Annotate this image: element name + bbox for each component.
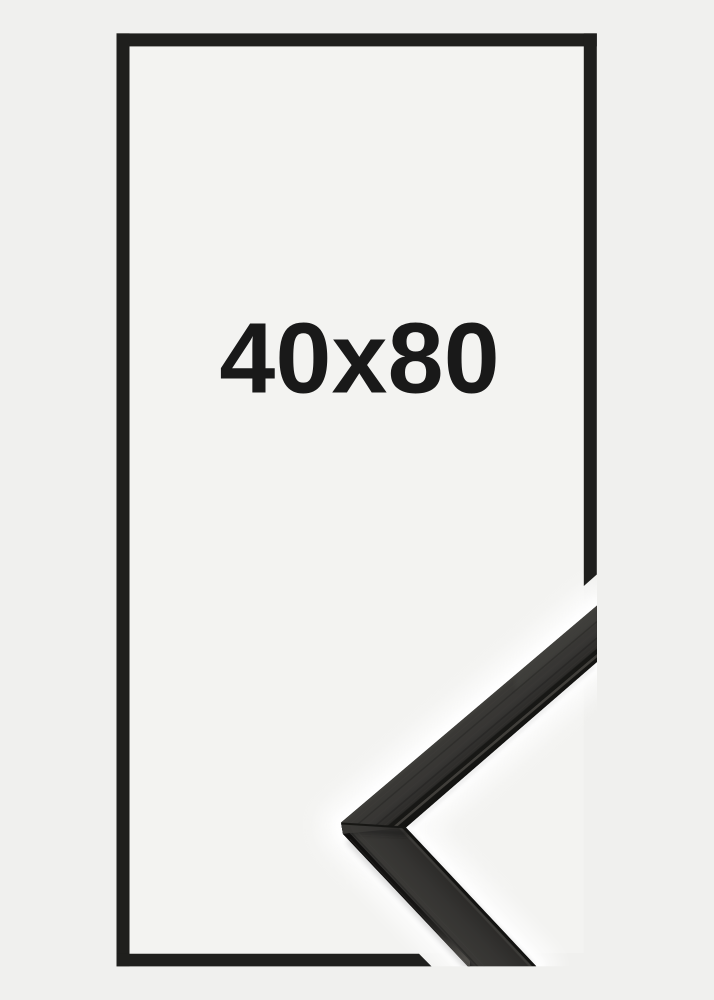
svg-text:40x80: 40x80 <box>219 303 499 415</box>
